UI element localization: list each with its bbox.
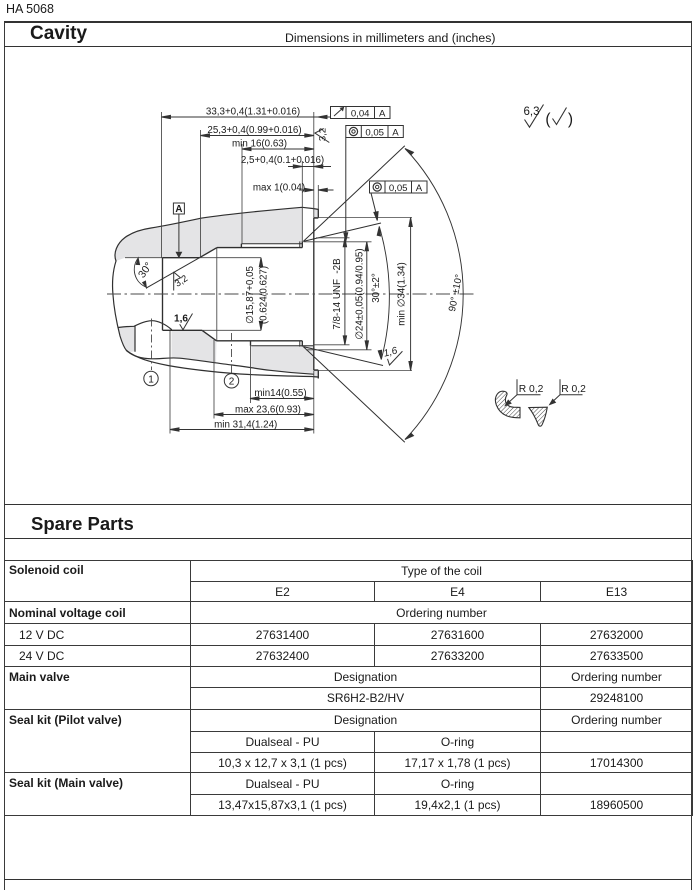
svg-text:0,05: 0,05 [365, 127, 384, 138]
svg-text:0,05: 0,05 [389, 183, 408, 194]
svg-text:R 0,2: R 0,2 [561, 384, 586, 395]
svg-text:max 1(0.04): max 1(0.04) [253, 183, 305, 194]
svg-text:7/8-14 UNF -2B: 7/8-14 UNF -2B [332, 258, 343, 330]
svg-text:3,2: 3,2 [318, 128, 329, 141]
svg-text:min 31,4(1.24): min 31,4(1.24) [214, 420, 277, 431]
svg-text:max 23,6(0.93): max 23,6(0.93) [235, 405, 301, 416]
svg-text:R 0,2: R 0,2 [519, 384, 544, 395]
svg-text:25,3+0,4(0.99+0.016): 25,3+0,4(0.99+0.016) [207, 125, 301, 136]
svg-text:A: A [392, 127, 399, 138]
svg-text:3,2: 3,2 [173, 273, 190, 289]
svg-text:2: 2 [229, 377, 235, 388]
svg-text:33,3+0,4(1.31+0.016): 33,3+0,4(1.31+0.016) [206, 107, 300, 118]
svg-text:A: A [379, 108, 386, 119]
svg-text:6,3: 6,3 [524, 106, 540, 118]
svg-text:): ) [568, 111, 573, 128]
svg-text:1: 1 [148, 374, 154, 385]
svg-text:0,04: 0,04 [351, 108, 370, 119]
svg-text:min ∅34(1.34): min ∅34(1.34) [397, 262, 408, 326]
svg-text:∅15,87+0,05: ∅15,87+0,05 [245, 266, 256, 324]
svg-text:∅24±0,05(0.94/0.95): ∅24±0,05(0.94/0.95) [355, 248, 366, 339]
svg-text:2,5+0,4(0.1+0.016): 2,5+0,4(0.1+0.016) [241, 155, 324, 166]
svg-text:(: ( [545, 111, 551, 128]
svg-text:A: A [416, 183, 423, 194]
svg-text:1,6: 1,6 [174, 314, 188, 325]
svg-text:min14(0.55): min14(0.55) [254, 388, 306, 399]
svg-text:30°±2°: 30°±2° [371, 273, 382, 303]
svg-text:min 16(0.63): min 16(0.63) [232, 139, 287, 150]
svg-text:(0.624/0.627): (0.624/0.627) [259, 266, 270, 324]
svg-text:A: A [175, 204, 182, 215]
